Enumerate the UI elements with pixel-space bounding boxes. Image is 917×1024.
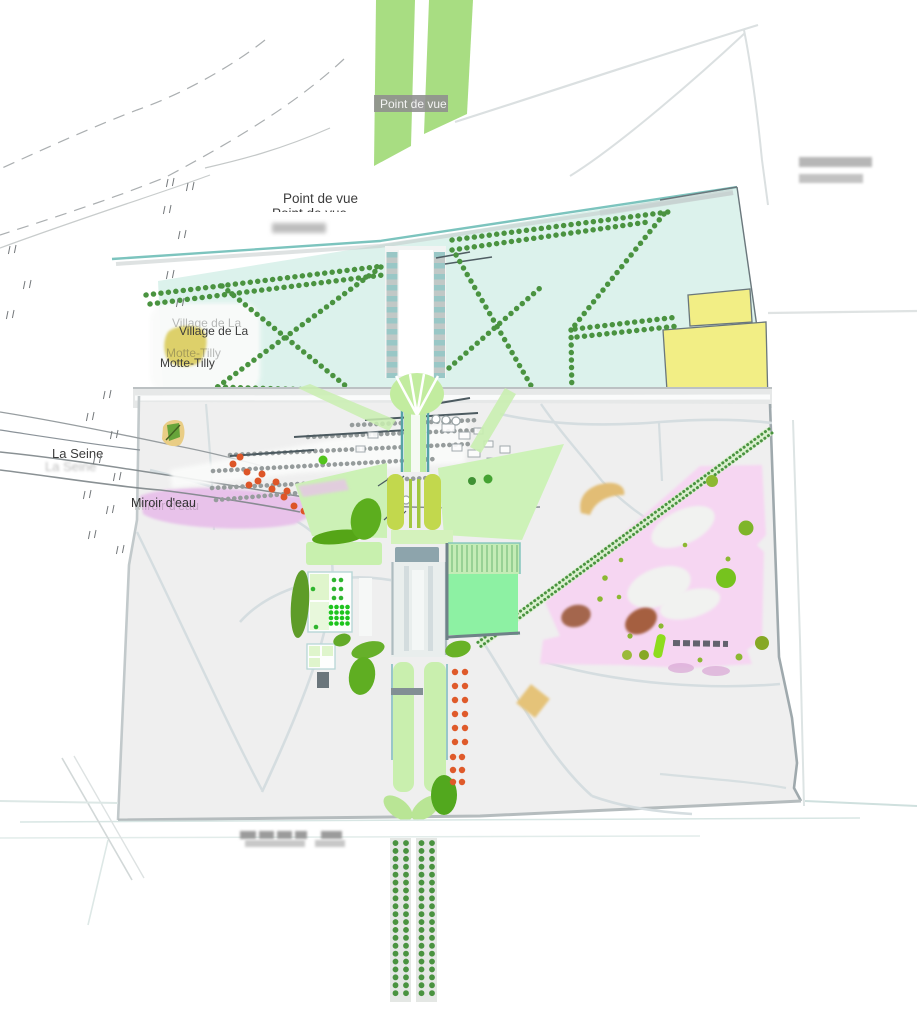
svg-text:Point de vue: Point de vue [283, 191, 358, 206]
svg-text:Motte-Tilly: Motte-Tilly [160, 356, 215, 370]
svg-text:La Seine: La Seine [45, 459, 96, 474]
svg-text:Village de La: Village de La [179, 324, 248, 338]
svg-text:Point de vue: Point de vue [380, 97, 447, 111]
svg-text:Miroir d'eau: Miroir d'eau [131, 496, 196, 510]
